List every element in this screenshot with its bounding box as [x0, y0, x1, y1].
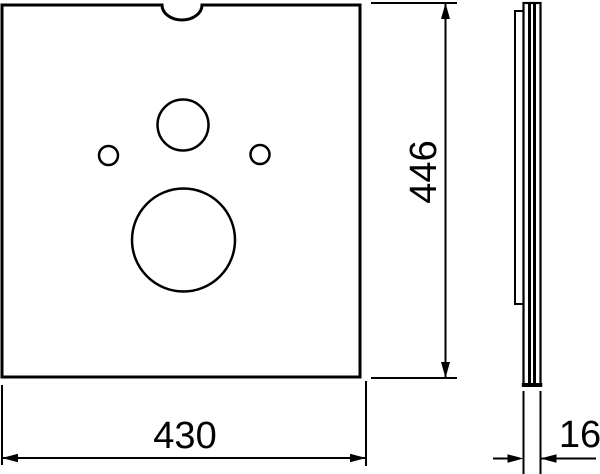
arrowhead-up-icon [441, 3, 450, 19]
arrowhead-inward-right-icon [508, 454, 524, 463]
arrowhead-down-icon [441, 362, 450, 378]
arrowhead-inward-left-icon [541, 454, 557, 463]
side-view [515, 3, 542, 386]
film-strip-layer [515, 11, 524, 304]
technical-drawing: 446 430 16 [0, 0, 600, 474]
height-dimension-label: 446 [403, 140, 445, 203]
small-hole-right [251, 145, 270, 164]
width-dimension-label: 430 [153, 415, 216, 457]
small-hole-left [99, 146, 118, 165]
thickness-dimension-label: 16 [559, 414, 600, 456]
technical-drawing-page: 446 430 16 [0, 0, 600, 474]
medium-hole [158, 100, 209, 151]
panel-outline-with-notch [2, 5, 360, 377]
width-dimension: 430 [2, 381, 366, 466]
height-dimension: 446 [371, 3, 457, 378]
thickness-dimension: 16 [493, 391, 600, 474]
arrowhead-right-icon [350, 454, 366, 463]
large-hole [132, 189, 235, 292]
side-panel-body [524, 3, 541, 386]
arrowhead-left-icon [2, 454, 18, 463]
front-view [2, 5, 360, 377]
